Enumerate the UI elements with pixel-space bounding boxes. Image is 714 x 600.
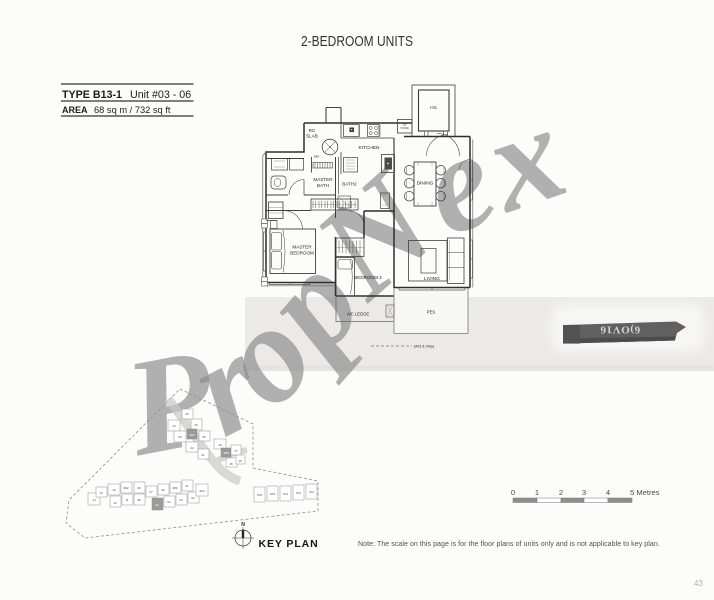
svg-text:19: 19	[218, 443, 222, 447]
svg-text:01: 01	[185, 484, 189, 488]
svg-text:14: 14	[92, 498, 96, 502]
svg-text:BEDROOM 2: BEDROOM 2	[354, 275, 382, 280]
svg-text:1: 1	[535, 488, 539, 497]
svg-text:(#03 & Only): (#03 & Only)	[414, 345, 434, 349]
svg-text:21: 21	[201, 453, 205, 457]
svg-text:PES: PES	[427, 310, 436, 315]
svg-text:12: 12	[113, 501, 117, 505]
svg-text:972: 972	[296, 491, 301, 495]
svg-text:04: 04	[167, 500, 171, 504]
svg-text:25: 25	[202, 435, 206, 439]
svg-text:02: 02	[191, 496, 195, 500]
svg-text:982: 982	[123, 486, 128, 490]
svg-text:20: 20	[194, 423, 198, 427]
svg-text:08: 08	[137, 498, 141, 502]
svg-text:17: 17	[234, 449, 238, 453]
svg-text:MASTER: MASTER	[313, 177, 333, 182]
svg-text:STORE: STORE	[400, 127, 409, 130]
svg-text:0: 0	[511, 488, 515, 497]
svg-text:BATH: BATH	[317, 183, 329, 188]
svg-text:3: 3	[582, 488, 586, 497]
svg-text:07: 07	[149, 490, 153, 494]
svg-text:D4D: D4D	[314, 155, 320, 159]
svg-text:Unit #03 - 06: Unit #03 - 06	[130, 89, 191, 101]
svg-text:09: 09	[137, 486, 141, 490]
svg-text:TYPE B13-1: TYPE B13-1	[62, 89, 122, 101]
svg-text:DINING: DINING	[417, 181, 434, 187]
svg-text:N: N	[241, 522, 245, 528]
svg-text:934: 934	[199, 489, 204, 493]
svg-text:03: 03	[179, 498, 183, 502]
svg-text:976: 976	[270, 492, 275, 496]
svg-text:26: 26	[185, 412, 189, 416]
svg-text:984: 984	[189, 433, 194, 437]
svg-text:970: 970	[309, 490, 314, 494]
svg-text:5 Metres: 5 Metres	[630, 488, 660, 497]
svg-text:A/C LEDGE: A/C LEDGE	[347, 312, 370, 317]
svg-text:6)OV16: 6)OV16	[600, 324, 640, 336]
svg-text:974: 974	[283, 492, 288, 496]
svg-text:06: 06	[155, 503, 159, 507]
svg-text:10: 10	[112, 488, 116, 492]
svg-text:BATH2: BATH2	[342, 182, 357, 187]
svg-text:980: 980	[172, 486, 177, 490]
svg-text:978: 978	[257, 493, 262, 497]
svg-text:BEDROOM: BEDROOM	[290, 251, 314, 256]
svg-text:15: 15	[229, 462, 233, 466]
svg-text:LIVING: LIVING	[424, 276, 440, 282]
svg-text:68 sq m / 732 sq ft: 68 sq m / 732 sq ft	[94, 105, 171, 115]
svg-text:22: 22	[190, 446, 194, 450]
svg-text:988: 988	[223, 451, 228, 455]
svg-text:24: 24	[172, 424, 176, 428]
svg-text:SLAB: SLAB	[306, 134, 318, 139]
svg-text:11: 11	[125, 498, 128, 502]
svg-text:RC: RC	[309, 128, 316, 133]
svg-text:05: 05	[161, 488, 165, 492]
svg-text:MASTER: MASTER	[292, 245, 312, 250]
svg-text:2: 2	[559, 488, 563, 497]
svg-text:23: 23	[178, 435, 182, 439]
svg-text:16: 16	[238, 459, 242, 463]
svg-text:4: 4	[606, 488, 610, 497]
svg-text:HS: HS	[430, 105, 436, 110]
svg-text:AREA: AREA	[62, 105, 88, 115]
svg-text:13: 13	[99, 491, 103, 495]
svg-text:KITCHEN: KITCHEN	[358, 145, 380, 151]
